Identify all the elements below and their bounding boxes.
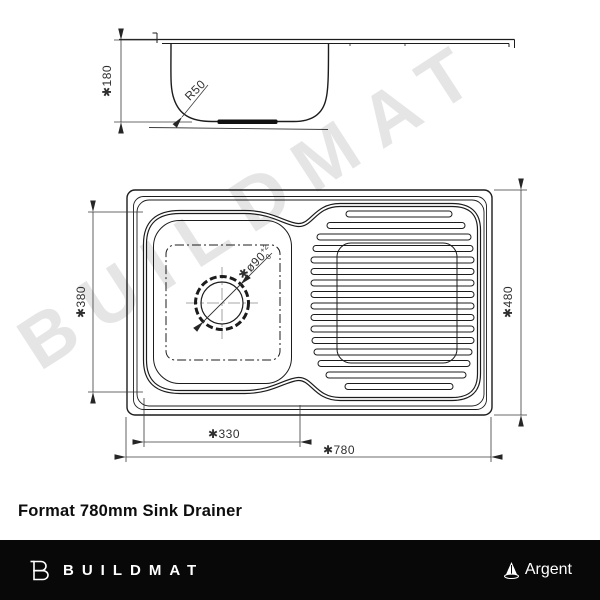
- dim-380-label: ✱380: [74, 286, 88, 318]
- side-drain-recess: [218, 120, 278, 125]
- dim-780-ext-lines: [126, 417, 491, 462]
- footer-bar: BUILDMAT Argent: [0, 540, 600, 600]
- dimension-bowl-length-380: [88, 212, 143, 392]
- buildmat-logo-icon: [28, 559, 51, 582]
- dim-90-label: ✱ø90+20: [235, 242, 277, 284]
- dim-780-label: ✱780: [323, 443, 355, 457]
- dim-90-arrow-lower: [203, 303, 222, 322]
- side-under-bowl-line: [149, 128, 328, 130]
- side-view-drawing: [119, 33, 515, 130]
- dimension-overall-width-780: [126, 417, 491, 462]
- argent-sail-logo-icon: [503, 561, 520, 580]
- radius-callout-r50: R50: [182, 77, 209, 117]
- buildmat-brand-text: BUILDMAT: [63, 562, 204, 579]
- side-rim-right-edge: [509, 40, 515, 49]
- r50-label: R50: [182, 77, 209, 104]
- dim-480-label: ✱480: [501, 286, 515, 318]
- sink-technical-drawing: ✱180 R50: [0, 0, 600, 498]
- dim-180-label: ✱180: [100, 65, 114, 97]
- dim-380-ext-lines: [88, 212, 143, 392]
- product-title: Format 780mm Sink Drainer: [18, 502, 242, 521]
- dim-330-label: ✱330: [208, 427, 240, 441]
- argent-brand: Argent: [503, 561, 572, 580]
- dim-90-arrow-upper: [222, 284, 241, 303]
- side-rim-left-clip: [153, 33, 158, 43]
- buildmat-brand: BUILDMAT: [28, 559, 204, 582]
- argent-brand-text: Argent: [525, 561, 572, 579]
- plan-view-drawing: [127, 190, 492, 415]
